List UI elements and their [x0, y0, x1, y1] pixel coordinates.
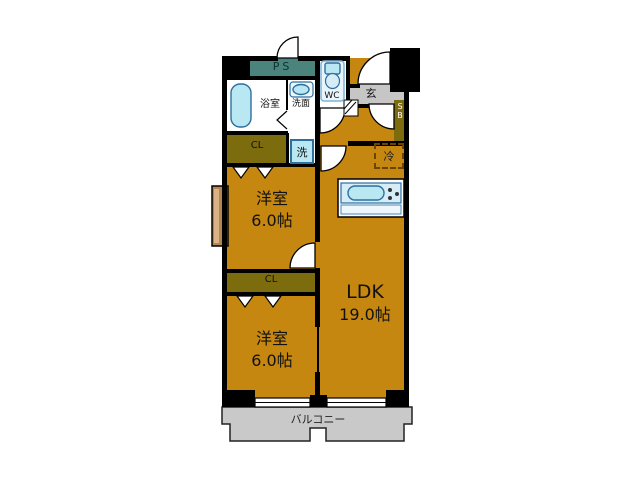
washroom-label: 洗面 — [287, 99, 315, 109]
entrance-step — [344, 100, 358, 116]
closet2-label: CL — [227, 274, 315, 286]
ldk-name: LDK — [346, 280, 384, 305]
wall-divider-top — [315, 56, 320, 166]
room2-label: 洋室 6.0帖 — [227, 328, 317, 371]
window-room2 — [255, 398, 310, 407]
wall-pier-bottom-right — [386, 390, 409, 407]
bathtub — [231, 84, 251, 127]
wall-block-top-left — [222, 58, 250, 78]
fridge-label: 冷 — [384, 148, 395, 164]
window-ldk — [327, 398, 386, 407]
kitchen-counter — [338, 179, 404, 217]
room1-name: 洋室 — [256, 188, 288, 210]
wall-room1-bottom — [222, 269, 319, 273]
walls-and-fixtures-layer — [0, 0, 640, 480]
wall-pier-bottom-mid — [310, 395, 327, 407]
stove-burner — [388, 188, 392, 192]
bath-folding-door — [277, 111, 287, 129]
bathroom-label: 浴室 — [252, 99, 288, 111]
closet1-door-mark — [233, 167, 249, 178]
wall-bath-bottom — [222, 131, 288, 135]
sliding-door-line — [317, 327, 319, 372]
wc-door-arc — [320, 108, 345, 133]
stove-burner — [388, 196, 392, 200]
wash-basin — [290, 82, 313, 97]
room1-label: 洋室 6.0帖 — [227, 188, 317, 231]
fridge-space: 冷 — [374, 143, 404, 169]
wall-divider-room2-bottom — [315, 372, 320, 395]
shoebox-label: S B — [394, 103, 406, 121]
stove-burner — [395, 192, 399, 196]
laundry-label: 洗 — [297, 144, 308, 160]
toilet-label: WC — [318, 91, 346, 101]
wall-ps-bottom — [222, 76, 315, 80]
room1-door-arc — [290, 243, 315, 268]
room2-size: 6.0帖 — [251, 350, 292, 372]
closet2-door-mark — [265, 296, 281, 307]
room1-size: 6.0帖 — [251, 210, 292, 232]
kitchen-sink — [348, 186, 384, 200]
ldk-size: 19.0帖 — [339, 305, 391, 326]
bay-window-highlight — [214, 189, 219, 243]
wall-right — [404, 88, 409, 407]
closet2-door-mark — [237, 296, 253, 307]
hall-door-arc — [369, 104, 394, 129]
ps-door-arc — [277, 37, 298, 58]
ldk-door-arc — [321, 146, 346, 171]
entrance-door-arc — [358, 52, 390, 84]
wall-pier-bottom-left — [222, 390, 255, 407]
closet1-label: CL — [227, 140, 287, 152]
closet1-door-mark — [257, 167, 273, 178]
entrance-label: 玄 — [358, 88, 384, 101]
wall-block-top-right — [390, 48, 420, 92]
shoebox-letter-b: B — [397, 112, 403, 121]
balcony-label: バルコニー — [258, 414, 378, 427]
pipe-space-label: PS — [250, 61, 315, 74]
laundry-space: 洗 — [290, 139, 314, 164]
floor-plan: PS 浴室 洗面 WC 玄 S B CL CL 洗 冷 洋室 6.0帖 洋室 6… — [0, 0, 640, 480]
room2-name: 洋室 — [256, 328, 288, 350]
ldk-label: LDK 19.0帖 — [322, 280, 408, 325]
wall-divider-cl2 — [315, 268, 320, 327]
